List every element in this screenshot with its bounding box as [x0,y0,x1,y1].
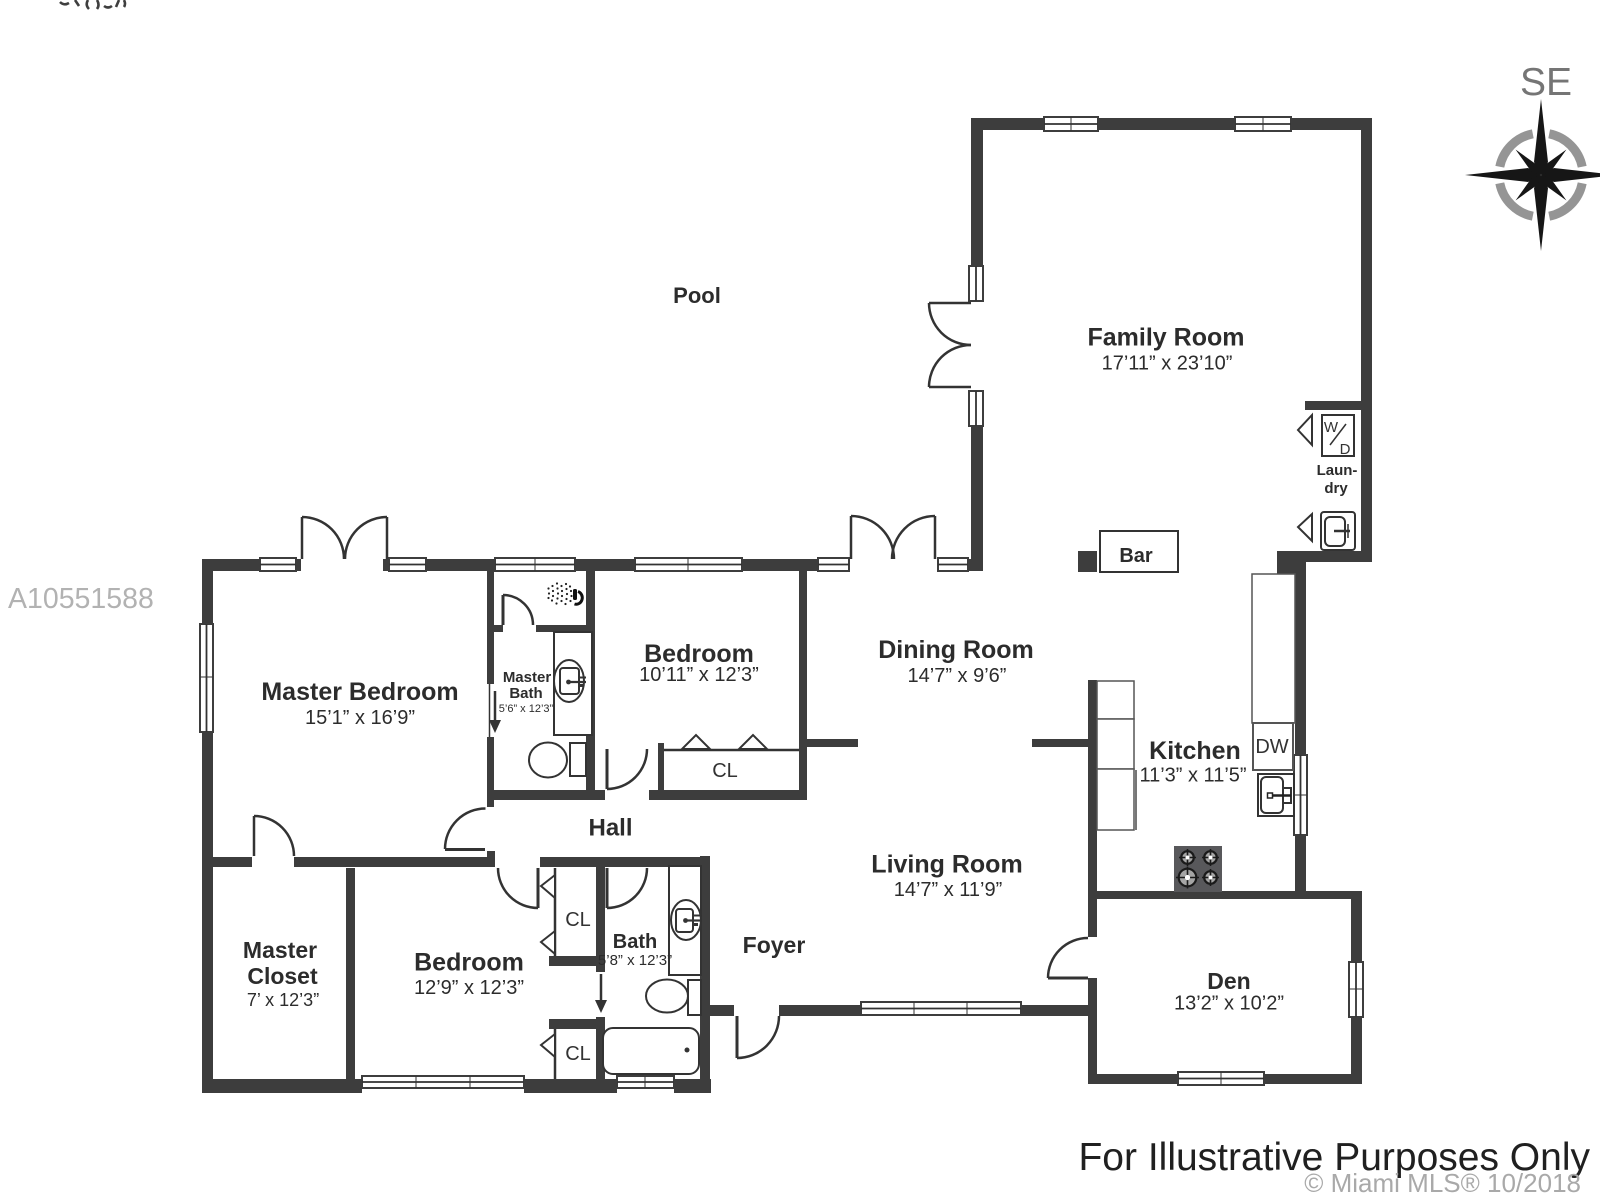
svg-text:CL: CL [712,760,738,782]
svg-text:Kitchen: Kitchen [1149,737,1241,765]
svg-text:Master: Master [503,669,552,686]
svg-text:Foyer: Foyer [743,932,806,958]
svg-text:5’8” x 12’3”: 5’8” x 12’3” [598,952,672,969]
svg-text:Laun-: Laun- [1317,462,1358,479]
svg-text:Master: Master [243,937,317,963]
svg-text:Den: Den [1207,968,1250,994]
svg-text:D: D [1340,441,1351,458]
svg-text:Pool: Pool [673,283,721,308]
svg-text:Dining Room: Dining Room [878,636,1034,664]
svg-text:dry: dry [1324,480,1348,497]
svg-text:5’6” x 12’3”: 5’6” x 12’3” [499,703,554,715]
svg-text:15’1” x 16’9”: 15’1” x 16’9” [305,707,415,729]
svg-text:W: W [1324,419,1339,436]
svg-text:CL: CL [565,1043,591,1065]
svg-text:A10551588: A10551588 [8,583,154,615]
svg-text:Bedroom: Bedroom [414,949,524,977]
svg-text:CL: CL [565,909,591,931]
svg-text:17’11” x 23’10”: 17’11” x 23’10” [1102,353,1233,375]
svg-text:14’7” x 9’6”: 14’7” x 9’6” [908,665,1007,687]
svg-text:Family Room: Family Room [1088,324,1245,352]
svg-text:Bath: Bath [613,931,657,953]
svg-text:7’ x 12’3”: 7’ x 12’3” [247,990,319,1010]
svg-text:Hall: Hall [588,815,632,842]
svg-text:Bath: Bath [509,685,542,702]
svg-text:DW: DW [1255,736,1288,758]
svg-text:Master Bedroom: Master Bedroom [261,678,458,706]
svg-text:12’9” x 12’3”: 12’9” x 12’3” [414,977,524,999]
svg-text:13’2” x 10’2”: 13’2” x 10’2” [1174,993,1284,1015]
svg-text:SE: SE [1520,61,1572,104]
svg-text:Living Room: Living Room [871,851,1022,879]
svg-text:11’3” x 11’5”: 11’3” x 11’5” [1139,765,1246,787]
svg-text:14’7” x 11’9”: 14’7” x 11’9” [894,879,1003,901]
svg-text:Closet: Closet [247,963,318,989]
svg-text:10’11” x 12’3”: 10’11” x 12’3” [639,664,759,686]
svg-text:Bar: Bar [1119,545,1153,567]
svg-text:© Miami MLS® 10/2018: © Miami MLS® 10/2018 [1304,1168,1581,1198]
